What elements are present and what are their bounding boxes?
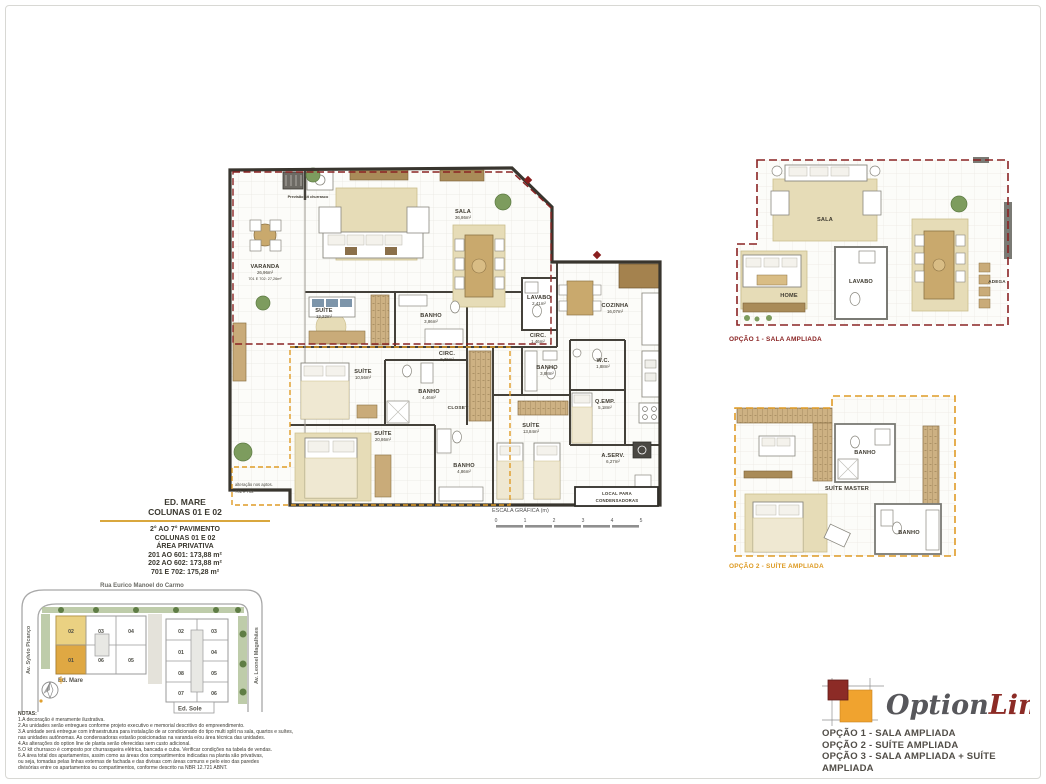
option2-plan: BANHO SUÍTE MASTER BANHO OPÇÃO 2 - SUÍTE… <box>727 386 969 578</box>
scale-tick: 3 <box>582 518 585 524</box>
logo-text-line: Line <box>988 690 1030 721</box>
mare-unit: 01 <box>68 658 74 664</box>
scale-tick: 2 <box>553 518 556 524</box>
label-banho3-area: 4,86m² <box>457 469 471 474</box>
sole-unit: 04 <box>211 650 217 656</box>
info-line: 201 AO 601: 173,88 m² <box>75 552 295 561</box>
condenser-box <box>575 487 658 506</box>
label-lavabo-area: 2,41m² <box>532 301 546 306</box>
label-circ2-area: 2,36m² <box>440 357 454 362</box>
info-line: ÁREA PRIVATIVA <box>75 543 295 552</box>
unit-info-block: ED. MARE COLUNAS 01 E 02 2° AO 7° PAVIME… <box>75 497 295 578</box>
mare-unit: 04 <box>128 629 134 635</box>
sole-unit: 03 <box>211 629 217 635</box>
label-suite-master: SUÍTE <box>374 429 392 437</box>
option-item: OPÇÃO 1 - SALA AMPLIADA <box>822 728 1042 740</box>
scale-bar: ESCALA GRÁFICA (m) 0 1 2 3 4 5 <box>490 505 660 535</box>
label-suite2: SUÍTE <box>354 367 372 375</box>
site-plan: 02 03 04 01 06 05 Ed. Mare 02 03 01 04 0… <box>16 574 270 716</box>
notes-block: NOTAS: 1.A decoração é meramente ilustra… <box>18 711 318 771</box>
gold-rule <box>100 520 270 522</box>
label-opt1-adega: ADEGA <box>988 279 1006 284</box>
info-line: COLUNAS 01 E 02 <box>75 535 295 544</box>
option1-caption: OPÇÃO 1 - SALA AMPLIADA <box>729 336 822 343</box>
scale-segments <box>496 525 639 528</box>
option2-caption: OPÇÃO 2 - SUÍTE AMPLIADA <box>729 563 824 570</box>
label-qemp-area: 5,18m² <box>598 405 612 410</box>
scale-tick: 0 <box>495 518 498 524</box>
entry-marker2-icon <box>593 251 601 259</box>
label-cozinha-area: 16,07m² <box>607 309 624 314</box>
label-varanda-area: 26,96m² <box>257 270 274 275</box>
mare-unit: 05 <box>128 658 134 664</box>
label-aserv-area: 6,27m² <box>606 459 620 464</box>
note-701-line2: 701 e 702 <box>235 489 254 494</box>
label-opt2-banho-bottom: BANHO <box>898 530 920 536</box>
label-varanda-area2: 701 E 702: 27,26m² <box>248 277 282 281</box>
svg-text:OptionLine: OptionLine <box>886 690 1030 721</box>
note-line: divisórias entre os apartamentos ou comp… <box>18 765 318 771</box>
mare-unit: 03 <box>98 629 104 635</box>
label-banho4-area: 3,88m² <box>540 371 554 376</box>
label-closet: CLOSET <box>448 405 469 411</box>
label-suite3: SUÍTE <box>522 421 540 429</box>
street-top-label: Rua Eurico Manoel do Carmo <box>100 583 184 589</box>
street-right-label: Av. Leonel Magalhães <box>254 627 260 684</box>
info-line: 202 AO 602: 173,88 m² <box>75 560 295 569</box>
ed-mare-building: 02 03 04 01 06 05 Ed. Mare <box>56 616 146 684</box>
label-kit-churrasco: Previsão kit churrasco <box>288 195 329 199</box>
sole-unit: 07 <box>178 691 184 697</box>
label-opt1-sala: SALA <box>817 217 833 223</box>
label-opt1-home: HOME <box>780 293 798 299</box>
scale-tick: 4 <box>611 518 614 524</box>
sole-unit: 02 <box>178 629 184 635</box>
info-line: 2° AO 7° PAVIMENTO <box>75 526 295 535</box>
label-suite1: SUÍTE <box>315 306 333 314</box>
label-sala-area: 36,86m² <box>455 215 472 220</box>
label-opt1-lavabo: LAVABO <box>849 279 873 285</box>
optionline-logo: OptionLine <box>818 676 1030 728</box>
label-condensadoras-1: LOCAL PARA <box>602 491 632 496</box>
option-item: OPÇÃO 2 - SUÍTE AMPLIADA <box>822 740 1042 752</box>
label-suite2-area: 10,56m² <box>355 375 372 380</box>
ed-sole-building: 02 03 01 04 08 05 07 06 Ed. Sole <box>166 619 228 713</box>
sole-unit: 06 <box>211 691 217 697</box>
main-floorplan: VARANDA 26,96m² 701 E 702: 27,26m² Previ… <box>225 155 670 520</box>
sole-unit: 05 <box>211 671 217 677</box>
label-suite-master-area: 20,86m² <box>375 437 392 442</box>
label-opt2-suite-master: SUÍTE MASTER <box>825 484 869 492</box>
option-list: OPÇÃO 1 - SALA AMPLIADA OPÇÃO 2 - SUÍTE … <box>822 728 1042 774</box>
note-701-line1: alteração nos aptos. <box>235 482 273 487</box>
sole-unit: 01 <box>178 650 184 656</box>
building-columns: COLUNAS 01 E 02 <box>75 507 295 517</box>
label-banho1-area: 3,86m² <box>424 319 438 324</box>
option1-plan: SALA HOME LAVABO ADEGA OPÇÃO 1 - SALA AM… <box>727 147 1017 349</box>
logo-maroon-square-icon <box>828 680 848 700</box>
mare-unit: 02 <box>68 629 74 635</box>
label-banho2-area: 4,46m² <box>422 395 436 400</box>
label-condensadoras-2: CONDENSADORAS <box>596 498 639 503</box>
label-suite3-area: 13,84m² <box>523 429 540 434</box>
scale-tick: 5 <box>640 518 643 524</box>
street-left-label: Av. Sylvio Picanço <box>26 625 32 674</box>
option-item: OPÇÃO 3 - SALA AMPLIADA + SUÍTE AMPLIADA <box>822 751 1042 774</box>
main-floorplan-drawing: VARANDA 26,96m² 701 E 702: 27,26m² Previ… <box>225 155 670 520</box>
label-opt2-banho-top: BANHO <box>854 450 876 456</box>
floorplan-sheet: { "info_block": { "building": "ED. MARE"… <box>0 0 1046 784</box>
label-wc-area: 1,88m² <box>596 364 610 369</box>
scale-title: ESCALA GRÁFICA (m) <box>492 507 549 514</box>
logo-text-option: Option <box>886 690 989 721</box>
building-name: ED. MARE <box>75 497 295 507</box>
label-circ1-area: 1,46m² <box>531 339 545 344</box>
label-suite1-area: 12,22m² <box>316 314 333 319</box>
sole-unit: 08 <box>178 671 184 677</box>
scale-tick: 1 <box>524 518 527 524</box>
mare-unit: 06 <box>98 658 104 664</box>
